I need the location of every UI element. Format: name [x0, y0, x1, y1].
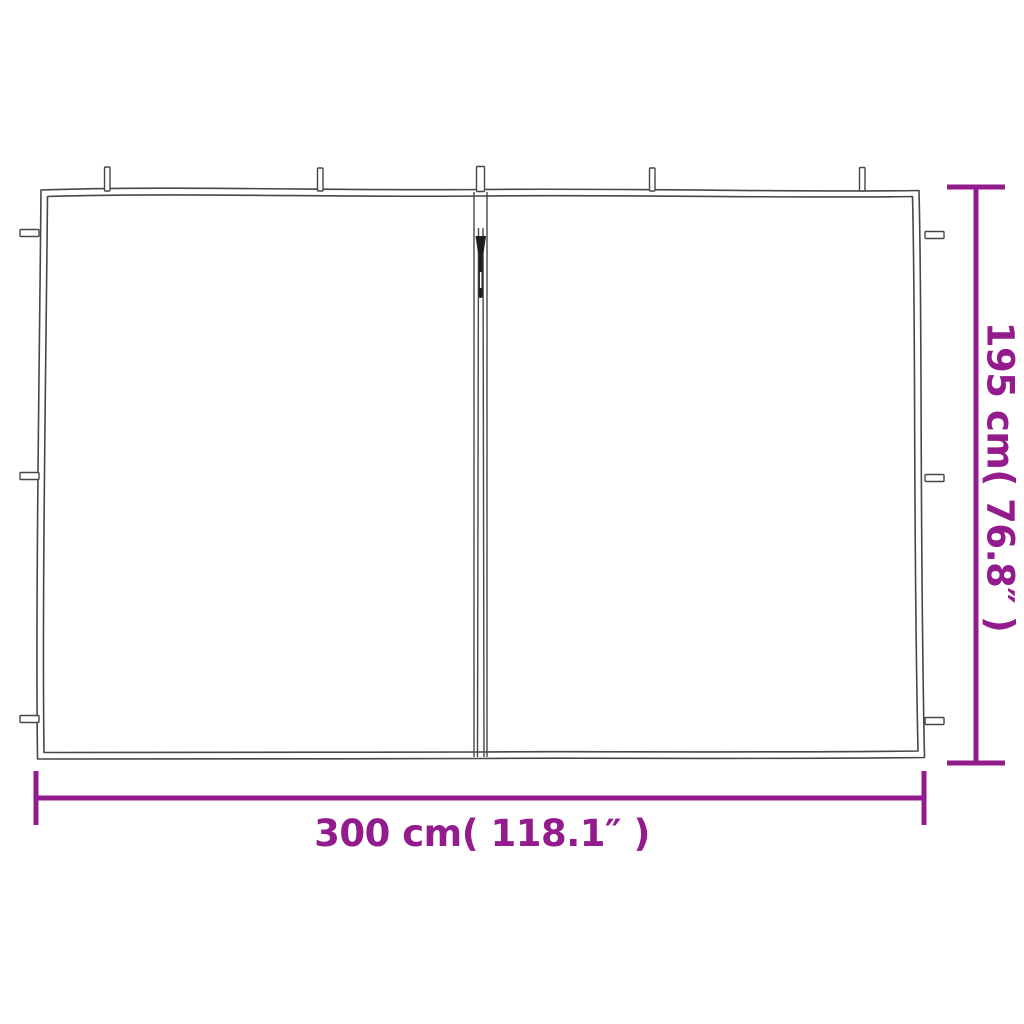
sidewall-diagram — [0, 0, 1024, 1024]
height-dimension-label: 195 cm( 76.8″ ) — [979, 322, 1020, 633]
right-tab-icon — [925, 475, 944, 482]
right-tab-icon — [925, 718, 944, 725]
zipper — [474, 192, 487, 757]
top-tab-icon — [477, 167, 485, 192]
product-diagram-canvas: 300 cm( 118.1″ ) 195 cm( 76.8″ ) — [0, 0, 1024, 1024]
top-tab-icon — [318, 168, 324, 191]
width-dimension-label: 300 cm( 118.1″ ) — [314, 814, 650, 855]
right-tab-icon — [925, 232, 944, 239]
top-tab-icon — [650, 168, 656, 191]
zipper-pull-icon — [476, 236, 487, 298]
left-tab-icon — [20, 716, 39, 723]
left-tab-icon — [20, 473, 39, 480]
top-tab-icon — [860, 168, 866, 192]
left-tab-icon — [20, 230, 39, 237]
top-tab-icon — [105, 167, 111, 191]
